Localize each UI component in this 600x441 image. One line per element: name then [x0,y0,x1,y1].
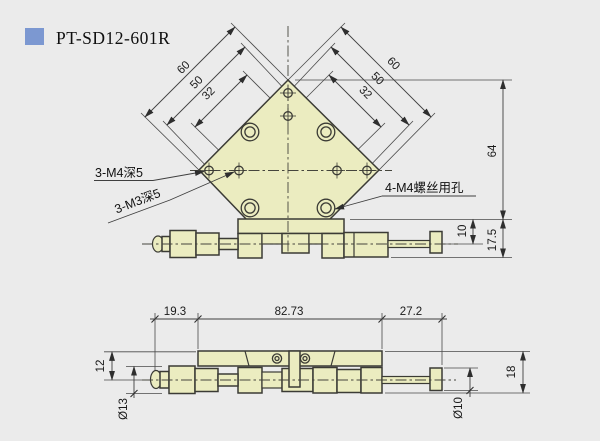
dim-value: 60 [384,55,402,73]
side-view-drawing: 19.3 82.73 27.2 [95,306,530,420]
dim-value: 18 [506,366,518,379]
dim-value: 64 [487,144,499,157]
page-title: PT-SD12-601R [56,28,170,48]
micrometer-barrel-right [344,233,388,258]
top-view-drawing: 60 50 32 60 50 32 [94,23,512,258]
dim-value: 10 [457,225,469,238]
dim-value: 17.5 [487,229,499,251]
dim-value: 19.3 [164,306,186,318]
callout-text: 3-M4深5 [95,166,143,180]
dim-12: 12 [95,352,112,380]
dim-dia-10: Ø10 [453,368,474,419]
drawing-canvas: PT-SD12-601R 60 [0,0,600,441]
callout-m4-tapped: 3-M4深5 [94,166,204,181]
title-bullet-icon [25,28,44,45]
center-pillar [289,351,300,387]
dim-left-50: 50 [167,47,245,125]
stage-platform [199,80,379,221]
dim-10: 10 [457,220,473,245]
dim-value: Ø13 [118,398,130,420]
dim-value: 32 [200,85,218,103]
dim-18: 18 [506,352,523,394]
rod-end-knob-side [430,368,442,391]
dim-value: 50 [368,70,386,88]
drawing-title: PT-SD12-601R [25,28,170,48]
dim-64: 64 [487,80,503,220]
dim-value: 27.2 [400,306,422,318]
dim-17-5: 17.5 [487,220,503,258]
rod-end-knob [430,232,442,254]
dim-right-60: 60 [341,27,431,117]
dim-value: 82.73 [275,306,304,318]
technical-drawing-page: PT-SD12-601R 60 [0,0,600,441]
callout-text: 4-M4螺丝用孔 [385,181,464,195]
dim-value: Ø10 [453,397,465,419]
stage-base [238,219,442,258]
dim-value: 60 [175,59,193,77]
dim-value: 12 [95,360,107,373]
